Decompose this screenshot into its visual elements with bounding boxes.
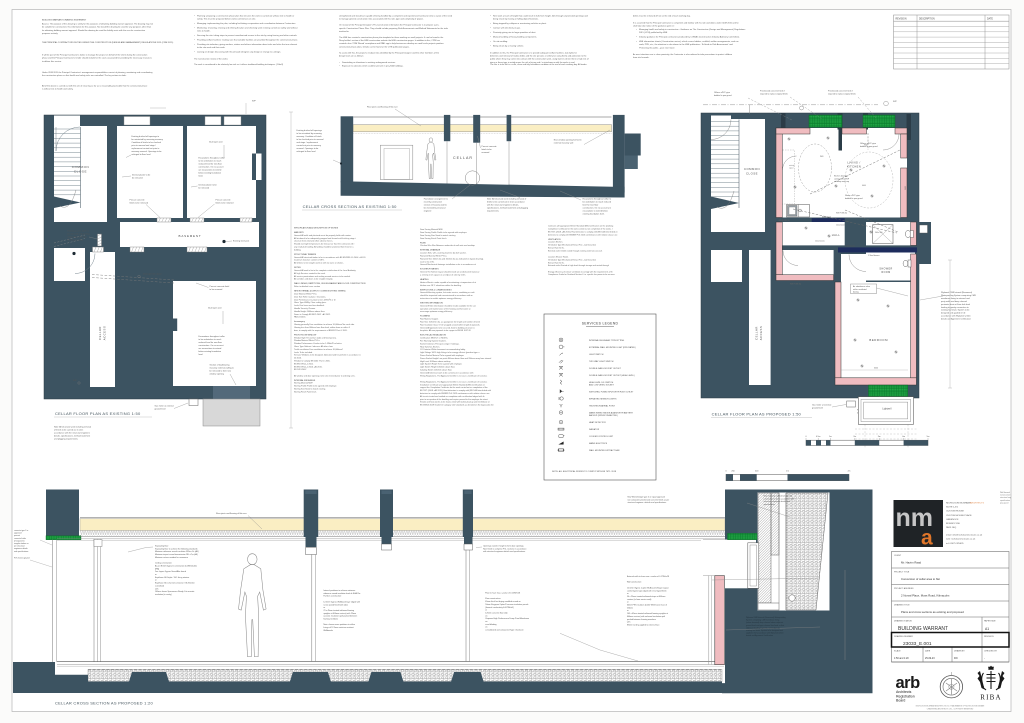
svg-text:detectors to comply with BS583: detectors to comply with BS5839 Pt.6 201… (420, 392, 490, 395)
svg-text:Window to Comply BS 6262: P: Window to Comply BS 6262: Part 4: 2005. (294, 360, 331, 363)
svg-text:Vault open over: Vault open over (208, 307, 222, 310)
svg-text:to manage general construction: to manage general construction risks ass… (339, 18, 424, 21)
svg-text:with: with (155, 587, 158, 590)
svg-text:debris must be removed off sit: debris must be removed off site at the e… (633, 15, 691, 18)
svg-text:construction. On no account: construction. On no account (199, 166, 224, 169)
svg-text:Note: All structural work incl: Note: All structural work including remo… (487, 198, 527, 201)
svg-text:required to replace original l: required to replace original lintels (760, 92, 788, 95)
svg-text:email: info@nicholsonmcshane.: email: info@nicholsonmcshane.co.uk (946, 535, 983, 537)
svg-text:the construction phase so that: the construction phase so that health an… (42, 74, 127, 77)
svg-text:145 x 45mm treated softwood fr: 145 x 45mm treated softwood framing upri… (627, 612, 669, 615)
svg-text:below existing foundation: below existing foundation (199, 350, 221, 353)
svg-text:membrane lining to external an: membrane lining to external and (941, 297, 970, 300)
svg-text:Minimum airbourne sound insula: Minimum airbourne sound insulation 53Dw+… (155, 550, 199, 553)
svg-text:External outlet Ducted: External outlet Ducted at high level thr… (548, 264, 609, 267)
svg-text:BS 7671 (2008 +A3 2015). Heat: BS 7671 (2008 +A3 2015). Heat detectors … (548, 230, 618, 233)
svg-text:NICHOLSON MCSHANE: NICHOLSON MCSHANE (946, 502, 971, 505)
svg-text:LIGHT SWITCH: LIGHT SWITCH (589, 354, 604, 356)
svg-text:prior to occupation of the dwe: prior to occupation of the dwelling and … (420, 398, 488, 401)
svg-text:specifications, method stateme: specifications, method statement and plu… (487, 207, 528, 210)
svg-text:In addition to this, the Princ: In addition to this, the Principal Contr… (490, 51, 577, 54)
svg-text:SUITE 1-3/1: SUITE 1-3/1 (946, 507, 959, 509)
svg-text:are excavations to extend: are excavations to extend (199, 169, 222, 172)
svg-text:Pipe Size 15/10mm: Pipe Size 15/10mm dia. as appropriate fo… (420, 321, 480, 324)
svg-text:All corridors and doors to be: All corridors and doors to be straight i… (294, 278, 333, 281)
svg-text:All high Services vented to th: All high Services vented to the used. (294, 272, 326, 275)
svg-text:60mm PIR insulation (0.022 W/m: 60mm PIR insulation (0.022 W/mK) over fa… (627, 604, 668, 607)
svg-text:ACCESS: ACCESS (759, 326, 763, 341)
svg-text:maximum moisture content of 18: maximum moisture content of 18%. (294, 259, 325, 262)
svg-text:DN: DN (954, 657, 958, 660)
svg-text:Vault open over: Vault open over (209, 141, 223, 144)
svg-text:details and Agrement Certifica: details and Agrement Certification (941, 318, 971, 321)
svg-text:W/S FOSB (S): W/S FOSB (S) (790, 284, 801, 286)
svg-text:pea gravel: pea gravel (1000, 502, 1009, 504)
svg-text:DATE: DATE (925, 650, 931, 653)
svg-text:General All structural ti: General All structural timber to be in a… (294, 256, 365, 259)
svg-text:INFRA RED SENSOR LIGHTS: INFRA RED SENSOR LIGHTS (589, 398, 617, 401)
svg-text:CELLAR CROSS SECTION AS PROPOS: CELLAR CROSS SECTION AS PROPOSED 1:20 (55, 701, 153, 706)
svg-text:Isolating Switch 1050mm: Isolating Switch 1050mm above floor. (420, 369, 453, 372)
svg-text:Wiring Regulations. The Approv: Wiring Regulations. The Approved Certifi… (420, 380, 487, 383)
svg-text:Sensors Windows to: Sensors Windows to be designed, fabricat… (294, 354, 361, 357)
svg-text:General Written: General Written information should be ma… (420, 304, 476, 307)
svg-text:screwfixed: screwfixed (155, 584, 164, 587)
svg-text:airbourne sound insulation lev: airbourne sound insulation level of 40dB… (323, 592, 361, 595)
svg-text:70 x 45mm treated softwood fra: 70 x 45mm treated softwood framing (323, 609, 354, 612)
svg-text:50mm Kingspan Optim-R vacuum i: 50mm Kingspan Optim-R vacuum insulation … (485, 603, 528, 606)
svg-text:LIVING /: LIVING / (847, 161, 860, 165)
svg-text:Internal plaster to be: Internal plaster to be (132, 174, 151, 177)
svg-text:Handle Security Chrome.: Handle Security Chrome. (294, 307, 316, 310)
svg-text:HALL: HALL (832, 233, 841, 237)
svg-text:BACKUP (INTERCONNECTED): BACKUP (INTERCONNECTED) (589, 414, 618, 417)
svg-text:level for new floor: level for new floor (583, 205, 599, 207)
svg-text:lintels to be: lintels to be (482, 148, 493, 151)
svg-text:be removed and opening: be removed and opening (68, 234, 90, 236)
svg-text:DRAWN BY: DRAWN BY (954, 650, 965, 653)
svg-text:NOTE: ALL ELECTRICAL WORKS TO: NOTE: ALL ELECTRICAL WORKS TO COMPLY WIT… (552, 470, 617, 473)
svg-text:PVC frames glazed: PVC frames glazed (14, 558, 29, 560)
svg-text:Door Facing Size Sized t: Door Facing Size Sized to match existing… (420, 234, 456, 237)
svg-text:structural engineer s details: structural engineer s details and specif… (628, 501, 667, 504)
svg-text:MASONRY: MASONRY (294, 231, 304, 234)
svg-text:linings of 12.5mm moisture res: linings of 12.5mm moisture resistant (323, 626, 354, 629)
svg-text:BS EN 1991-1-1:2006 +A1:2015.: BS EN 1991-1-1:2006 +A1:2015. (294, 365, 323, 368)
svg-text:900 x 900: 900 x 900 (875, 232, 882, 234)
svg-text:reduced level for new floor: reduced level for new floor (199, 164, 223, 166)
svg-text:engineer: engineer (424, 211, 432, 213)
svg-text:General The Kit: General The Kitchen layout should includ… (420, 271, 479, 274)
svg-text:be reinstated by removing maso: be reinstated by removing masonry. (132, 138, 164, 141)
svg-text:(IFA): (IFA) (155, 567, 159, 570)
svg-text:Door Material White PVCu: Door Material White PVCu (294, 293, 317, 296)
svg-text:detectors to comply with BS583: detectors to comply with BS5839 Pt.6 201… (548, 233, 617, 236)
svg-text:structural engineers details a: structural engineers details and (764, 500, 790, 503)
svg-text:External walls to have max. u-: External walls to have max. u-value of 0… (627, 575, 670, 578)
svg-text:be removed to form new: be removed to form new (210, 370, 232, 373)
svg-text:required to replace original l: required to replace original lintels (828, 92, 856, 95)
svg-text:Skirting Profile Profile to: Skirting Profile Profile to be agreed wi… (294, 385, 337, 388)
svg-text:shall take due notice of the g: shall take due notice of the guidance gi… (633, 25, 675, 28)
svg-text:operation and maintenance of t: operation and maintenance of the heating… (420, 307, 471, 310)
svg-text:8/5mm tanking applied to exter: 8/5mm tanking applied to external face (627, 623, 659, 626)
svg-text:of lintels to be carried out i: of lintels to be carried out in strict (54, 429, 84, 432)
svg-text:Equithane GL8 triple / GL1 lin: Equithane GL8 triple / GL1 lining retain… (155, 576, 190, 579)
svg-text:CELLAR FLOOR PLAN AS PROPOSED: CELLAR FLOOR PLAN AS PROPOSED 1:50 (712, 412, 802, 417)
svg-text:12.5mm Gyproc Wallboard layer: 12.5mm Gyproc Wallboard layer edged with (323, 600, 360, 603)
svg-text:framing members: framing members (323, 618, 338, 621)
svg-text:bedded in pea gravel: bedded in pea gravel (714, 94, 732, 97)
svg-text:DRAWING STATUS: DRAWING STATUS (894, 620, 912, 623)
svg-text:CHARTERED ARCHITECTS LTD - COP: CHARTERED ARCHITECTS LTD - COPYRIGHT RES… (927, 708, 974, 711)
svg-text:General A heati: General A heating system, hot water serv… (420, 291, 475, 294)
svg-text:Separating floor to achieve th: Separating floor to achieve the followin… (155, 547, 198, 550)
svg-text:Door Facing Finish Paint f: Door Facing Finish Paint finish. (420, 237, 447, 240)
svg-text:Prestressed concrete lintels i: Prestressed concrete lintels if (828, 90, 853, 93)
svg-text:perimeter drain at floor slab: perimeter drain at floor slab level (941, 303, 971, 306)
svg-text:Wallboards: Wallboards (323, 629, 332, 632)
svg-text:are excavations to extend: are excavations to extend (199, 347, 222, 350)
svg-text:and plugging requirements.: and plugging requirements. (54, 438, 79, 441)
svg-text:(thermal conductivity 0.007W/m: (thermal conductivity 0.007W/mK) (485, 606, 514, 609)
svg-text:carried out prior to masonry: carried out prior to masonry (297, 144, 321, 147)
svg-text:25-09-23: 25-09-23 (925, 657, 935, 660)
svg-text:bedded in pea gravel: bedded in pea gravel (845, 197, 863, 200)
svg-text:to be undertaken to reach: to be undertaken to reach (199, 338, 222, 341)
svg-text:Window Style Tilt and t: Window Style Tilt and turn (side and fix… (294, 336, 337, 339)
svg-text:and specifications: and specifications (14, 550, 28, 553)
svg-text:Pipe Material Copper.: Pipe Material Copper. (420, 318, 439, 321)
svg-text:Excavations throughout cellar: Excavations throughout cellar to (583, 198, 612, 201)
svg-text:Heaters Electri: Heaters Electric under capable of mainta… (420, 281, 476, 284)
svg-text:on: on (485, 627, 487, 629)
svg-text:kitchen over 18°C elsewhere wi: kitchen over 18°C elsewhere within the d… (420, 284, 462, 287)
svg-text:CELLAR CROSS SECTION AS EXISTI: CELLAR CROSS SECTION AS EXISTING 1:50 (303, 204, 397, 209)
svg-text:Clear beams: Clear beams (815, 240, 825, 243)
svg-text:W09: W09 (820, 156, 824, 158)
svg-text:be removed: be removed (199, 188, 210, 190)
svg-text:Light Switch Height 1050mm: Light Switch Height 1050mm above floor. (420, 366, 456, 369)
svg-text:A1: A1 (985, 627, 989, 631)
svg-text:Wall thermal: Wall thermal (1000, 491, 1011, 494)
svg-text:SWITCHED, FUSED SPUR WITH FLEX: SWITCHED, FUSED SPUR WITH FLEX OUTLET (589, 392, 634, 394)
svg-text:Contact with electricity or ga: Contact with electricity or gas. (493, 27, 521, 30)
svg-text:It will be part of the Princip: It will be part of the Principal Contrac… (42, 54, 147, 57)
svg-text:W08: W08 (864, 145, 868, 147)
svg-text:Minimum octave resident for re: Minimum octave resident for resonance (155, 556, 188, 559)
svg-text:BS 1413:2007.: BS 1413:2007. (294, 369, 307, 371)
svg-text:uprights at 600mm centres) wit: uprights at 600mm centres) with 25mm (323, 612, 356, 615)
svg-text:As most situations are in clos: As most situations are in close proximit… (633, 53, 732, 56)
svg-text:with structural engineers deta: with structural engineers details and sp… (483, 550, 526, 553)
svg-text:Pipework Size 50mm di: Pipework Size 50mm dia and 100mm dia (as… (420, 257, 484, 260)
svg-text:Gas meter at external: Gas meter at external (812, 404, 832, 407)
svg-text:AND LOW LEVEL SOCKET: AND LOW LEVEL SOCKET (589, 384, 615, 387)
svg-text:VENTILATION: VENTILATION (548, 238, 561, 241)
svg-text:100mm uPVC pipe: 100mm uPVC pipe (714, 92, 730, 94)
svg-text:1:50 and 1:20: 1:50 and 1:20 (894, 657, 909, 660)
svg-text:System comprising CM8 membrane: System comprising CM8 membrane lining (746, 619, 779, 622)
svg-text:to be checked prior to removal: to be checked prior to removal (297, 138, 324, 141)
svg-text:control layer) tape edged with: control layer) tape edged with emul tape… (627, 589, 667, 592)
svg-text:external masonry wall: external masonry wall (554, 142, 574, 145)
svg-text:MAINS ELECTRICS: MAINS ELECTRICS (589, 442, 608, 445)
svg-text:Gas meter at external: Gas meter at external (155, 405, 175, 408)
svg-text:INTERNAL FINISHINGS: INTERNAL FINISHINGS (294, 379, 316, 382)
svg-text:non composite prestressed conc: non composite prestressed concrete linte… (628, 498, 670, 501)
svg-text:lintels to be removed: lintels to be removed (130, 202, 148, 205)
svg-text:New window opening formed in: New window opening formed in (554, 140, 582, 142)
svg-text:Socket Detectors Princip: Socket Detectors Principal corriger / ha… (420, 342, 460, 345)
svg-text:Light System Height To be a: Light System Height To be agreed with em… (420, 363, 463, 366)
svg-text:with: with (627, 621, 630, 624)
svg-text:window opening: window opening (210, 374, 224, 376)
svg-text:and stage / replacement: and stage / replacement (297, 141, 319, 144)
svg-text:being struck by moving or fall: being struck by moving or falling object… (493, 18, 539, 21)
svg-text:PAPER SIZE: PAPER SIZE (984, 620, 996, 623)
svg-text:DATE: DATE (987, 18, 993, 21)
svg-text:Extract Rate 60 l/s.: Extract Rate 60 l/s. (548, 261, 565, 264)
svg-text:Lock to fan 1:80.: Lock to fan 1:80. (420, 260, 435, 263)
svg-text:Glazing generally Free venti: Glazing generally Free ventilation to ac… (294, 323, 355, 326)
svg-text:involved in.: involved in. (339, 31, 350, 33)
svg-text:enlarged to floor level: enlarged to floor level (132, 153, 152, 156)
svg-text:specifications: specifications (764, 503, 775, 506)
svg-text:All brickwork to be adequately: All brickwork to be adequately propped a… (294, 237, 356, 240)
svg-text:3m: 3m (878, 436, 881, 438)
svg-text:Managing: implementing the pla: Managing: implementing the plan, includi… (197, 22, 296, 25)
svg-text:faceplate. All new pipework to: faceplate. All new pipework to be copper… (420, 329, 471, 332)
svg-text:ACCESS: ACCESS (102, 326, 106, 341)
svg-text:CUSTOM HOUSE: CUSTOM HOUSE (946, 511, 964, 513)
svg-text:6000: 6000 (874, 368, 878, 370)
svg-text:Separating floor: Separating floor (155, 545, 169, 548)
svg-text:Equithane GL5 channel connecto: Equithane GL5 channel connector / GL8 bi… (155, 582, 195, 585)
svg-text:Ironmongery: Ironmongery (294, 321, 305, 323)
svg-text:Providing site induction, givi: Providing site induction, giving workers… (197, 43, 297, 46)
svg-text:1 Steel beams: 1 Steel beams (868, 254, 880, 257)
svg-text:specification: specification (1000, 499, 1010, 502)
svg-text:connected to SVP: connected to SVP (834, 177, 850, 180)
svg-text:3600: 3600 (905, 186, 907, 190)
svg-text:Pipe Insulation Class O: Pipe Insulation Class O foil wrapped aro… (420, 323, 480, 326)
svg-text:Conversion of cellar area to f: Conversion of cellar area to flat (901, 577, 940, 581)
svg-text:Section of loadbearing: Section of loadbearing (210, 364, 230, 367)
svg-text:BUILDING WARRANT DRAWING STATE: BUILDING WARRANT DRAWING STATEMENT (42, 19, 87, 22)
svg-text:KITCHEN: KITCHEN (847, 164, 861, 168)
svg-text:COOKER CONTROL UNIT: COOKER CONTROL UNIT (589, 436, 614, 438)
svg-text:any newly built walling. All w: any newly built walling. All walling sho… (294, 246, 354, 249)
svg-text:CELLAR FLOOR PLAN AS EXISTING: CELLAR FLOOR PLAN AS EXISTING 1:50 (55, 411, 141, 416)
svg-text:INSPECTIONS & COMMISSIONING: INSPECTIONS & COMMISSIONING (420, 289, 452, 291)
svg-text:SCALE: SCALE (894, 650, 901, 653)
svg-text:door, to comply with the requi: door, to comply with the requirements of… (294, 329, 348, 332)
svg-text:existing foul drain. System t: existing foul drain. System to be (941, 309, 970, 312)
svg-text:INTERNAL BULKHEAD TYPE FITTING: INTERNAL BULKHEAD TYPE FITTING (589, 339, 625, 342)
svg-text:50 x 25mm treated softwood str: 50 x 25mm treated softwood straps at 600… (627, 595, 666, 598)
svg-text:Completion Certificate for the: Completion Certificate for the work carr… (548, 228, 613, 231)
svg-text:Floor to have max. u-value of: Floor to have max. u-value of 0.15W/m2K (485, 592, 521, 595)
svg-text:accordance with the structural: accordance with the structural engineers (54, 432, 90, 435)
svg-text:All timbers to be straight and: All timbers to be straight and true with… (294, 262, 344, 265)
svg-text:Trickle ventilators Free venti: Trickle ventilators Free ventilation to … (294, 348, 343, 351)
svg-text:recently constructed: recently constructed (424, 201, 442, 204)
svg-text:to be removed: to be removed (210, 288, 223, 291)
svg-text:All circuits tested and verifi: All circuits tested and verified on comp… (420, 395, 485, 398)
svg-text:BUILDING WARRANT: BUILDING WARRANT (898, 626, 948, 632)
svg-text:CLOSE: CLOSE (746, 171, 758, 175)
svg-text:STRUCTURAL TIMBERS: STRUCTURAL TIMBERS (294, 253, 317, 256)
svg-text:Floor joists and flooring of f: Floor joists and flooring of flat over (216, 512, 247, 515)
svg-text:Assess: The purpose of this dr: Assess: The purpose of this drawing is s… (42, 23, 153, 26)
svg-text:Mr. Hazim Raad: Mr. Hazim Raad (901, 561, 921, 565)
svg-text:ground level: ground level (812, 408, 823, 410)
svg-text:replacement carried out prior: replacement carried out prior to (132, 147, 161, 150)
svg-text:INTERNAL DRAINAGE: INTERNAL DRAINAGE (420, 249, 441, 252)
svg-text:WRITTEN INFORMATION: WRITTEN INFORMATION (420, 302, 443, 305)
svg-text:2 Norval Place, Moss Road, Kil: 2 Norval Place, Moss Road, Kilmacolm (901, 594, 950, 598)
svg-text:Energy efficiency of extract v: Energy efficiency of extract ventilation… (548, 270, 613, 273)
svg-text:Window Material White PVCu: Window Material White PVCu. (294, 339, 320, 342)
svg-text:New lintels to comprise PCL se: New lintels to comprise PCL sections in … (483, 547, 526, 550)
svg-text:2m: 2m (853, 436, 856, 438)
svg-text:Floor joists and flooring of f: Floor joists and flooring of flat over (367, 106, 398, 109)
svg-text:Existing bricked off openings: Existing bricked off openings (297, 129, 322, 132)
svg-text:Ceiling construction:: Ceiling construction: (155, 562, 172, 565)
svg-text:Monitoring: reviewing, revisin: Monitoring: reviewing, revising and refi… (197, 27, 298, 30)
svg-text:masonry removal. Openings to: masonry removal. Openings to be (132, 150, 163, 153)
svg-text:roofs, PPE, etc., the attentio: roofs, PPE, etc., the attention is also … (639, 43, 734, 46)
svg-text:Wykamol CM8 Internal (Basement: Wykamol CM8 Internal (Basement) (941, 291, 972, 294)
svg-text:web: nicholsonmcshane.co.uk: web: nicholsonmcshane.co.uk (946, 539, 976, 541)
svg-text:Planning: preparing a construc: Planning: preparing a construction phase… (197, 15, 294, 18)
svg-text:ground level and gaps channel: ground level and gaps channel has lined … (746, 624, 785, 627)
svg-text:Existing bricked off openings: Existing bricked off openings to (132, 135, 161, 138)
svg-text:Ventilation Type Mechani: Ventilation Type Mechanical Extract Fan … (548, 244, 597, 247)
svg-text:consolidated and compacted Typ: consolidated and compacted Type 1 hardco… (485, 629, 523, 632)
svg-text:Glass Type HS/By. Cle: Glass Type HS/By. Clear safety glass. (294, 301, 327, 304)
svg-text:sand blinding: sand blinding (485, 624, 496, 626)
svg-text:65mm thick fast drying modifie: 65mm thick fast drying modified screed o… (485, 600, 520, 603)
svg-text:constructed to be in accordanc: constructed to be in accordance with (764, 497, 795, 500)
svg-text:WALL MOUNTED EXTRACT FAN: WALL MOUNTED EXTRACT FAN (589, 449, 620, 452)
svg-text:building.: building. (294, 249, 302, 251)
svg-text:Securing the site: taking step: Securing the site: taking steps to preve… (197, 34, 298, 37)
svg-text:Should overnight temperatures: Should overnight temperatures be forecas… (294, 243, 355, 246)
svg-text:Existing access hatch to: Existing access hatch to (68, 230, 90, 233)
svg-text:CO Detector Within: CO Detector Within basement accommodatin… (420, 348, 466, 351)
svg-text:2015 (L153) published by HSE: 2015 (L153) published by HSE (639, 32, 668, 34)
svg-text:Partition construction:: Partition construction: (323, 595, 342, 598)
svg-text:Condition of lintels to be che: Condition of lintels to be checked (132, 141, 161, 144)
svg-text:Pipework Material White P: Pipework Material White PVCu. (420, 255, 447, 258)
svg-text:All window and door openings t: All window and door openings to be site … (294, 374, 356, 377)
svg-text:section of masonry wall to: section of masonry wall to (424, 204, 448, 207)
svg-text:Skirting Size Sized to m: Skirting Size Sized to match existing. (294, 388, 326, 391)
svg-text:space: space (789, 168, 794, 170)
svg-text:is without risk to health and: is without risk to health and safety. (42, 88, 74, 91)
svg-text:ROOM: ROOM (881, 271, 890, 274)
svg-text:construction. On no account: construction. On no account (199, 344, 224, 347)
svg-text:Proximity giving rise to large: Proximity giving rise to large quantitie… (493, 31, 536, 34)
svg-text:External outlet Outlet: External outlet Outlet routed through ex… (548, 249, 603, 252)
svg-text:to the site work and their wor: to the site work and their work. (197, 46, 226, 49)
svg-text:safety. This must be prepared: safety. This must be prepared before wor… (197, 18, 256, 21)
svg-text:It is assumed that the Princip: It is assumed that the Principal Contrac… (633, 22, 740, 25)
svg-text:instructions to enable optimum: instructions to enable optimum energy ef… (420, 297, 462, 300)
svg-text:Location Shower: Location Shower Room. (548, 256, 569, 259)
svg-text:EXTERNAL WALL MOUNTED LIGHT (I: EXTERNAL WALL MOUNTED LIGHT (IP65 RATED) (589, 346, 636, 349)
svg-text:4m: 4m (902, 436, 905, 438)
svg-text:Heat Switches Kitchen: Heat Switches Kitchen. (420, 345, 440, 348)
svg-text:applied in full accordance wit: applied in full accordance with Wykamol … (746, 632, 784, 635)
svg-text:PLUMBING: PLUMBING (420, 316, 431, 318)
svg-text:General All pip: General All pipework to be secured, fixe… (420, 326, 475, 329)
svg-text:All service penetrations and s: All service penetrations and sealing aro… (294, 275, 351, 278)
svg-text:Under CDM 2015 the Principal C: Under CDM 2015 the Principal Contractor'… (42, 71, 152, 74)
svg-text:(where denoted) deep channel a: (where denoted) deep channel above adjac… (746, 621, 784, 624)
svg-text:Precast concrete: Precast concrete (482, 145, 498, 148)
svg-text:Precast concrete lintel: Precast concrete lintel (210, 285, 230, 288)
svg-text:packed between framing members: packed between framing members (627, 618, 656, 621)
svg-text:Rest work at such of height th: Rest work at such of height that could r… (493, 15, 589, 18)
svg-text:Note: shower room partitions t: Note: shower room partitions to utilise (323, 623, 355, 626)
svg-text:Exposure to asbestos which cou: Exposure to asbestos which could be pres… (342, 65, 404, 68)
svg-text:DESCRIPTION: DESCRIPTION (919, 19, 935, 21)
svg-text:Smoke and heat alarms to be ma: Smoke and heat alarms to be mains wired … (420, 401, 490, 404)
svg-text:structure from wind and other: structure from wind and other adverse fo… (294, 240, 333, 243)
svg-text:Fire Warning System Grade D: Fire Warning System Grade D. (420, 340, 447, 343)
svg-text:600mm centres) with rockwool i: 600mm centres) with rockwool insulation … (627, 615, 666, 618)
svg-text:COMMON: COMMON (744, 167, 760, 171)
svg-text:1m: 1m (786, 471, 789, 473)
svg-text:TELEVISION AERIAL POINT: TELEVISION AERIAL POINT (589, 405, 616, 408)
svg-text:Skirting Material MDF.: Skirting Material MDF. (294, 382, 313, 385)
svg-text:Waterproofing System comprisin: Waterproofing System comprising CM8 (941, 294, 977, 297)
svg-text:2no. layers Gyproc SoundBloc b: 2no. layers Gyproc SoundBloc board (155, 570, 186, 573)
svg-text:accordance with Wykamol writte: accordance with Wykamol written (941, 315, 971, 318)
svg-text:bedded in pea gravel: bedded in pea gravel (860, 145, 878, 148)
svg-text:Chicken Wire Film Between: Chicken Wire Film Between underside of w… (420, 244, 476, 247)
svg-text:Floor construction:: Floor construction: (485, 597, 501, 600)
svg-text:details and Agrement Certifica: details and Agrement Certification (746, 634, 773, 637)
svg-text:50mm uPVC pipe: 50mm uPVC pipe (845, 195, 860, 197)
svg-text:details, specifications, metho: details, specifications, method statemen… (54, 435, 90, 438)
svg-text:Internal plaster to be: Internal plaster to be (199, 184, 218, 187)
svg-text:FILMS: FILMS (420, 242, 426, 244)
svg-text:W/S FOSB (S): W/S FOSB (S) (779, 220, 790, 222)
svg-text:on: on (485, 621, 487, 623)
svg-text:with the structural engineers: with the structural engineers details, (487, 204, 519, 207)
svg-text:General All ele: General All electrical work to be carrie… (420, 371, 473, 374)
svg-text:The Construction review of the: The Construction review of the works: (194, 58, 229, 61)
svg-text:PAS 24:2016.: PAS 24:2016. (294, 316, 306, 319)
svg-text:'Busy builder' section of the: 'Busy builder' section of the HSE constr… (339, 39, 440, 42)
svg-text:24:2016.: 24:2016. (294, 358, 302, 360)
svg-text:should be inspected and commis: should be inspected and commissioned in … (420, 294, 473, 297)
svg-text:Precast concrete: Precast concrete (130, 199, 146, 202)
svg-text:PROJECT TITLE: PROJECT TITLE (894, 572, 910, 574)
svg-text:construction phase plans. Deta: construction phase plans. Details can be… (339, 45, 410, 48)
svg-text:23033_E.001: 23033_E.001 (903, 641, 932, 647)
svg-text:New Wienerberger type Z or equ: New Wienerberger type Z or equal approve… (628, 496, 665, 499)
svg-text:designed and applied in full: designed and applied in full (941, 313, 966, 315)
svg-text:BS 5839-6:2019 Grade D1 Catego: BS 5839-6:2019 Grade D1 Category LD2 sta… (420, 404, 494, 407)
svg-text:Existing steel post: Existing steel post (233, 240, 250, 243)
svg-text:Foundation arrangement to: Foundation arrangement to (424, 198, 449, 201)
svg-text:The site is to be left in a sa: The site is to be left in a safe, clean … (490, 63, 588, 66)
